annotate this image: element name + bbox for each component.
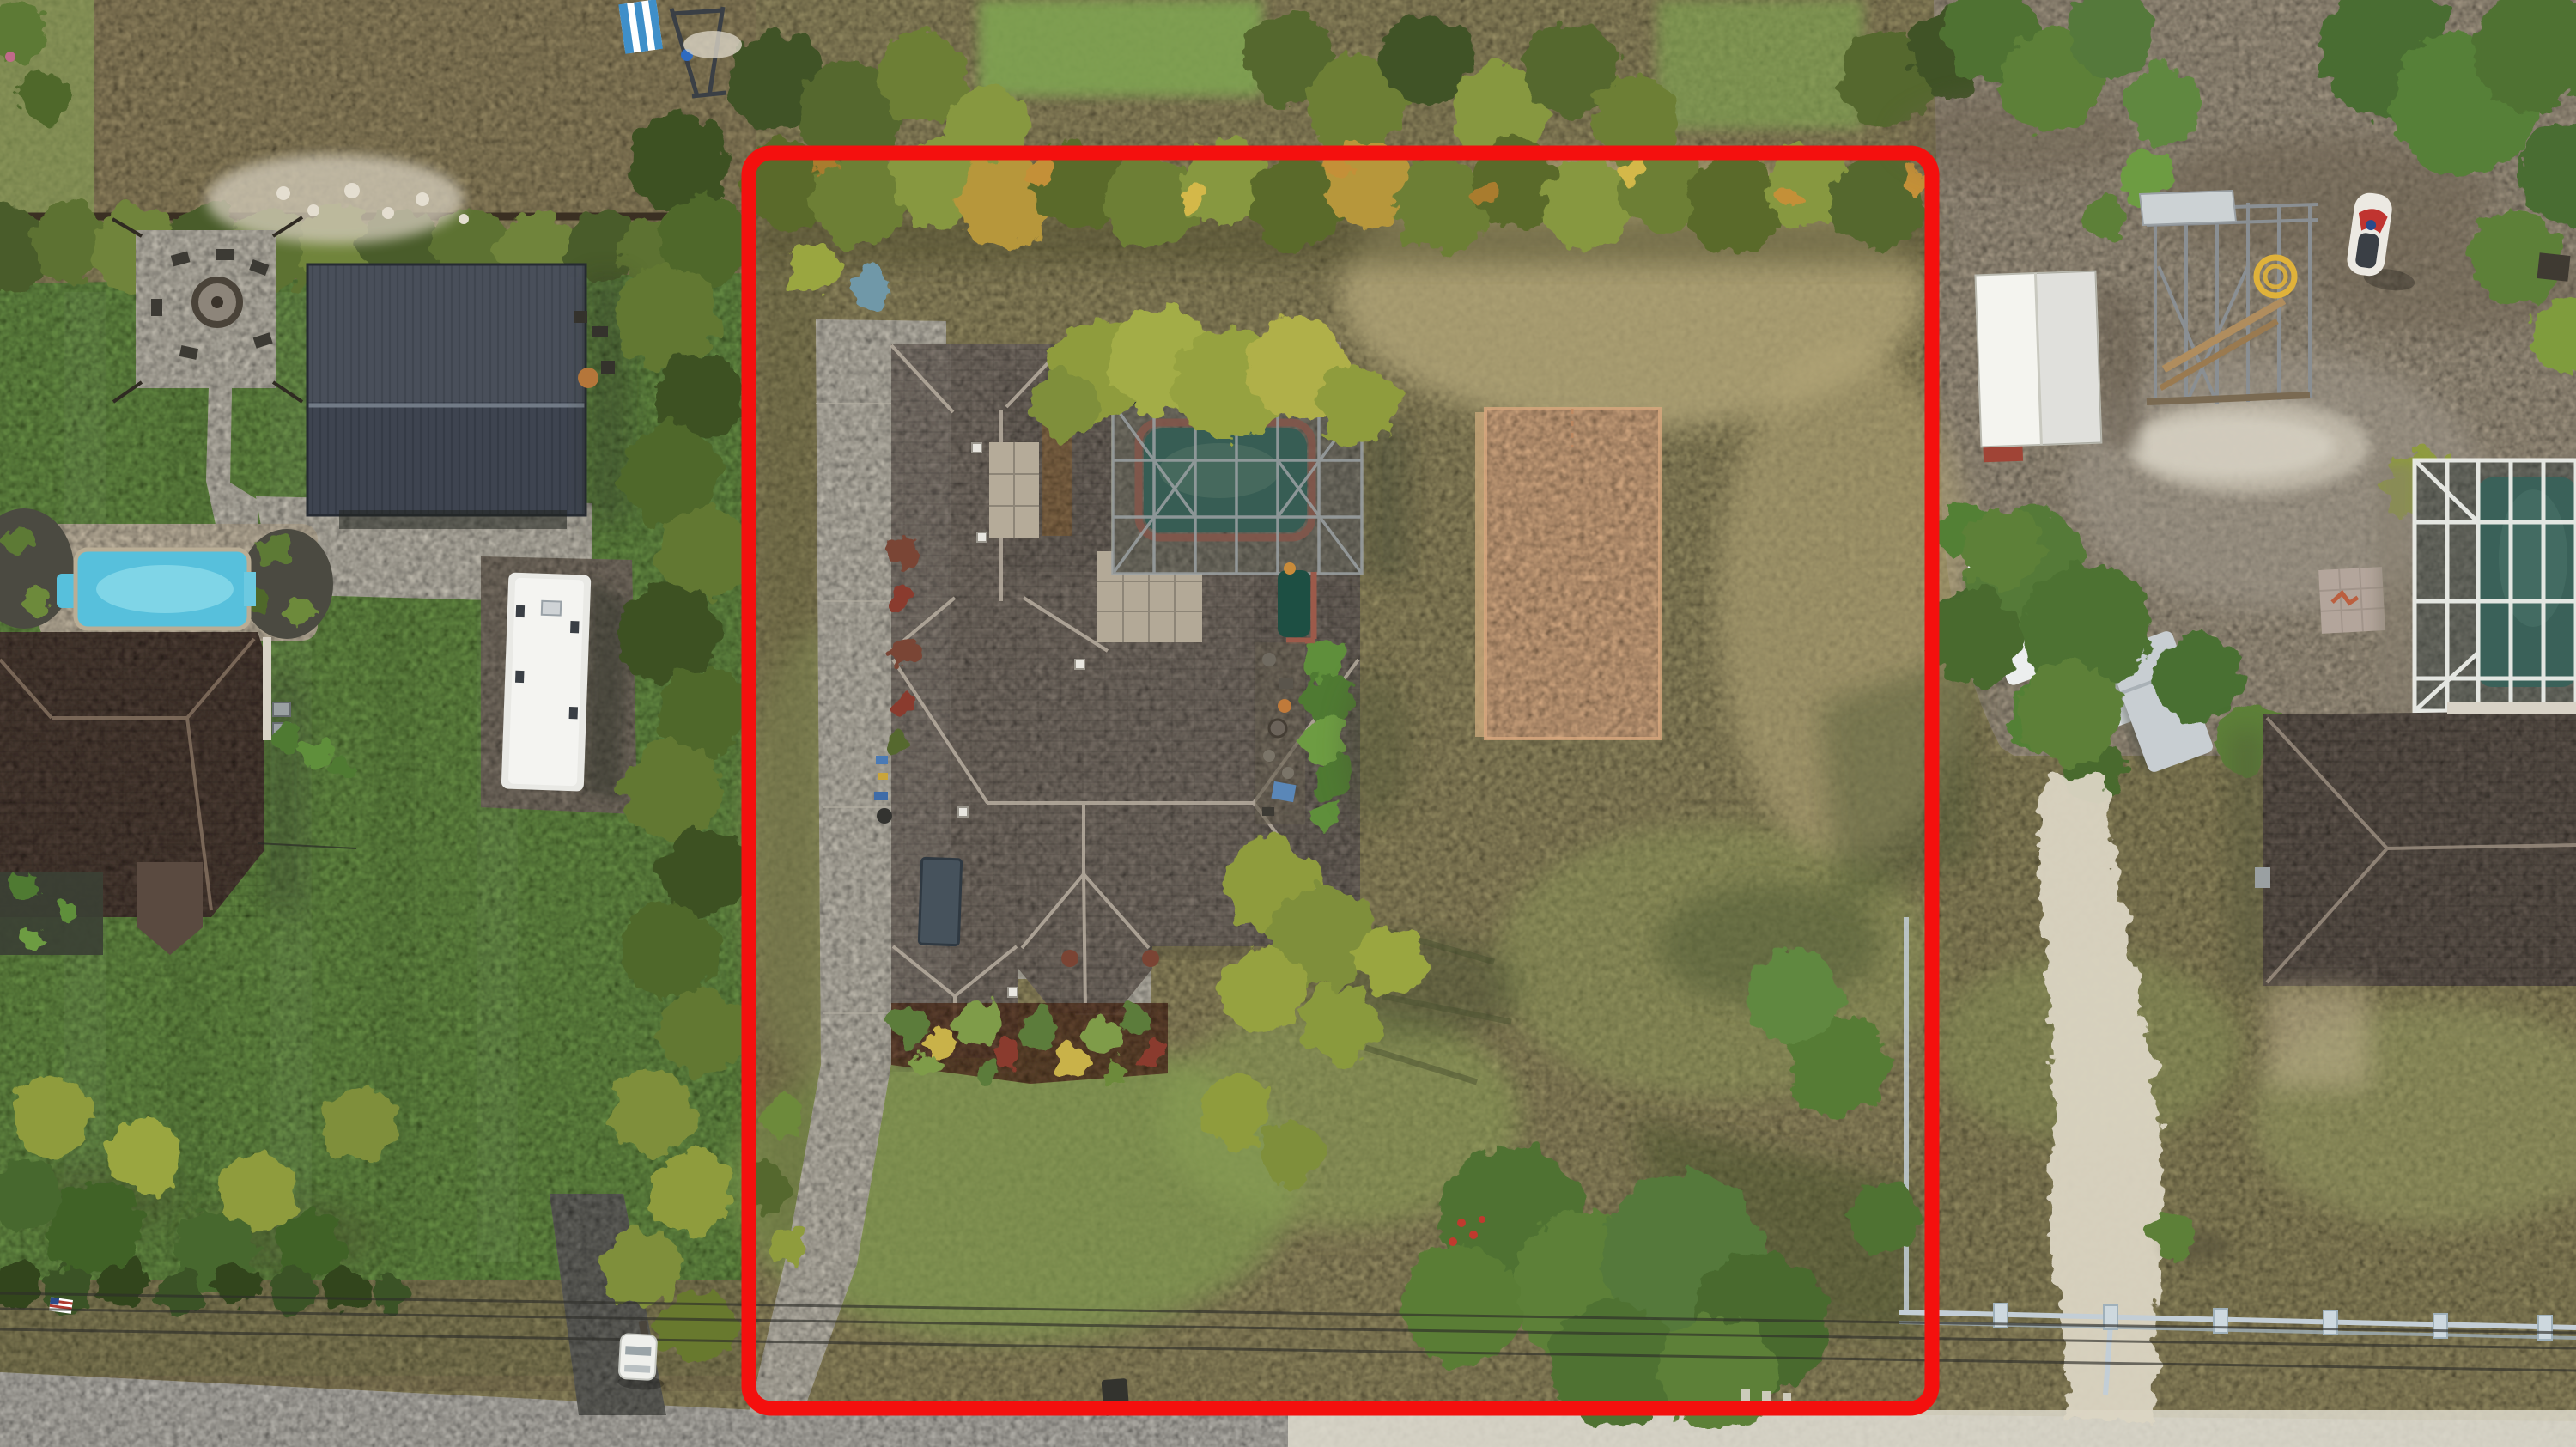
- fire-pit-patio: [112, 217, 302, 402]
- grass-gap-top: [979, 0, 1262, 96]
- right-pool-enclosure: [2377, 460, 2576, 713]
- white-debris: [2129, 416, 2336, 477]
- entry-pot: [1142, 950, 1159, 967]
- grill: [1269, 720, 1286, 737]
- frame-roof-panel: [2140, 191, 2236, 225]
- rear-window: [624, 1365, 650, 1373]
- skylight-panel: [919, 858, 961, 945]
- potted-plant: [1284, 562, 1296, 575]
- pool-highlight: [96, 565, 234, 613]
- ac-unit: [2255, 867, 2270, 888]
- back-patio-items: [1255, 642, 1305, 824]
- canopy-shadow: [2098, 280, 2142, 454]
- entry-pot: [1061, 950, 1078, 967]
- paver-pad: [2318, 567, 2385, 634]
- pool-steps: [244, 572, 256, 606]
- barn-door-shadow: [339, 510, 567, 529]
- blue-agave: [851, 267, 892, 308]
- windshield: [625, 1346, 651, 1356]
- orange-bucket: [1278, 699, 1291, 713]
- barn: [307, 264, 630, 529]
- striped-lounger: [618, 0, 663, 54]
- enclosure-shadow: [2377, 464, 2415, 713]
- wood-table: [578, 368, 598, 388]
- fire-pit-center: [211, 296, 223, 308]
- bare-patch: [2267, 986, 2370, 1089]
- grass-gap-top2: [1657, 0, 1863, 129]
- white-canopy: [1975, 270, 2141, 462]
- left-pool-area: [0, 508, 333, 641]
- east-wall: [263, 637, 271, 740]
- rv-shadow: [583, 579, 629, 801]
- dark-table: [2537, 252, 2571, 282]
- ac-unit: [273, 702, 290, 716]
- rv-ac-unit: [542, 601, 562, 616]
- pink-flowers: [5, 52, 15, 62]
- sport-court: [1475, 409, 1660, 739]
- white-rocks: [683, 31, 742, 58]
- screen-mesh: [2415, 460, 2576, 711]
- aerial-photo-canvas: [0, 0, 2576, 1447]
- aerial-photo: [0, 0, 2576, 1447]
- hedge-shadow: [1343, 670, 1412, 824]
- roof-panel-patch: [989, 442, 1039, 538]
- small-palm: [788, 245, 840, 296]
- rv-trailer: [501, 572, 629, 801]
- sport-court-pad: [1485, 409, 1660, 739]
- house-shadow: [2229, 730, 2265, 988]
- north-wall: [2447, 702, 2576, 714]
